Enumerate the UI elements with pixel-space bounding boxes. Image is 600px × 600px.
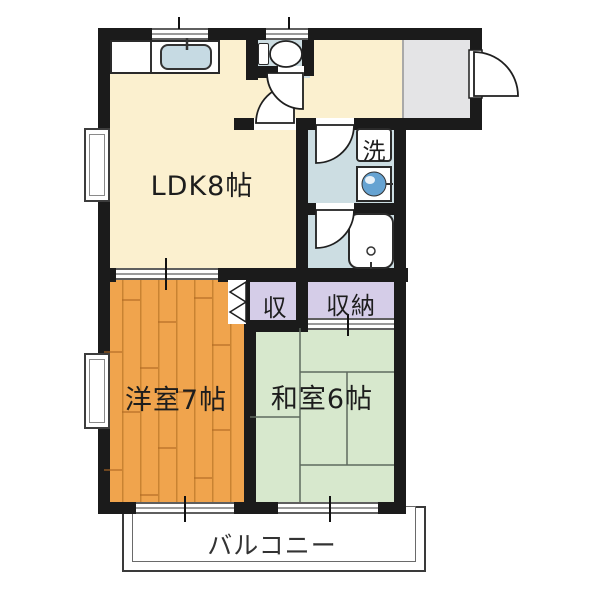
bathtub-drain-icon [367, 247, 375, 255]
bathroom-door-swing [316, 210, 354, 248]
room-label-storage: 収納 [291, 286, 411, 321]
room-label-laundry: 洗 [356, 132, 392, 166]
opening-center-ticks [166, 17, 348, 522]
room-label-japanese: 和室6帖 [222, 377, 422, 416]
toilet-bowl-icon [270, 41, 302, 67]
room-label-balcony: バルコニー [152, 526, 392, 562]
washroom-door-swing [316, 125, 354, 163]
entry-door-swing [474, 52, 518, 96]
washbasin-bowl-icon [362, 172, 386, 196]
washbasin-highlight [365, 176, 375, 184]
floorplan: LDK8帖 洋室7帖 和室6帖 収 収納 洗 バルコニー [0, 0, 600, 600]
room-label-ldk: LDK8帖 [102, 164, 302, 203]
